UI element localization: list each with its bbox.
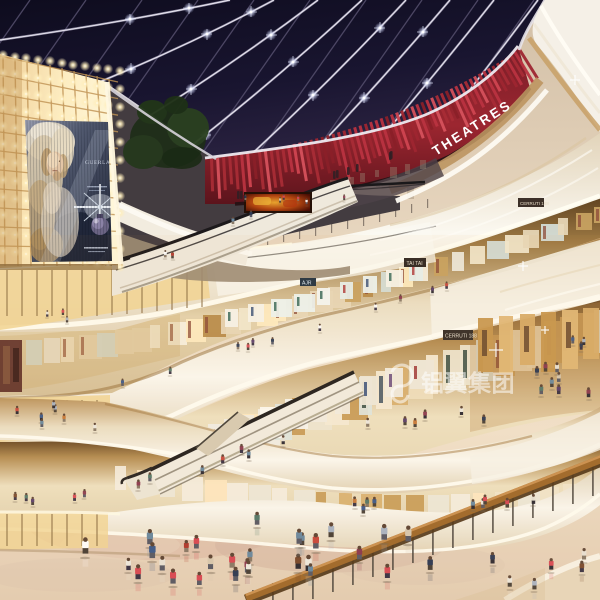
svg-text:TAI TAI: TAI TAI	[407, 261, 423, 267]
svg-text:AJR: AJR	[302, 281, 312, 287]
svg-text:CERRUTI 188: CERRUTI 188	[520, 201, 549, 206]
svg-text:CERRUTI 188: CERRUTI 188	[445, 334, 477, 340]
svg-text:铝翼集团: 铝翼集团	[421, 370, 515, 396]
